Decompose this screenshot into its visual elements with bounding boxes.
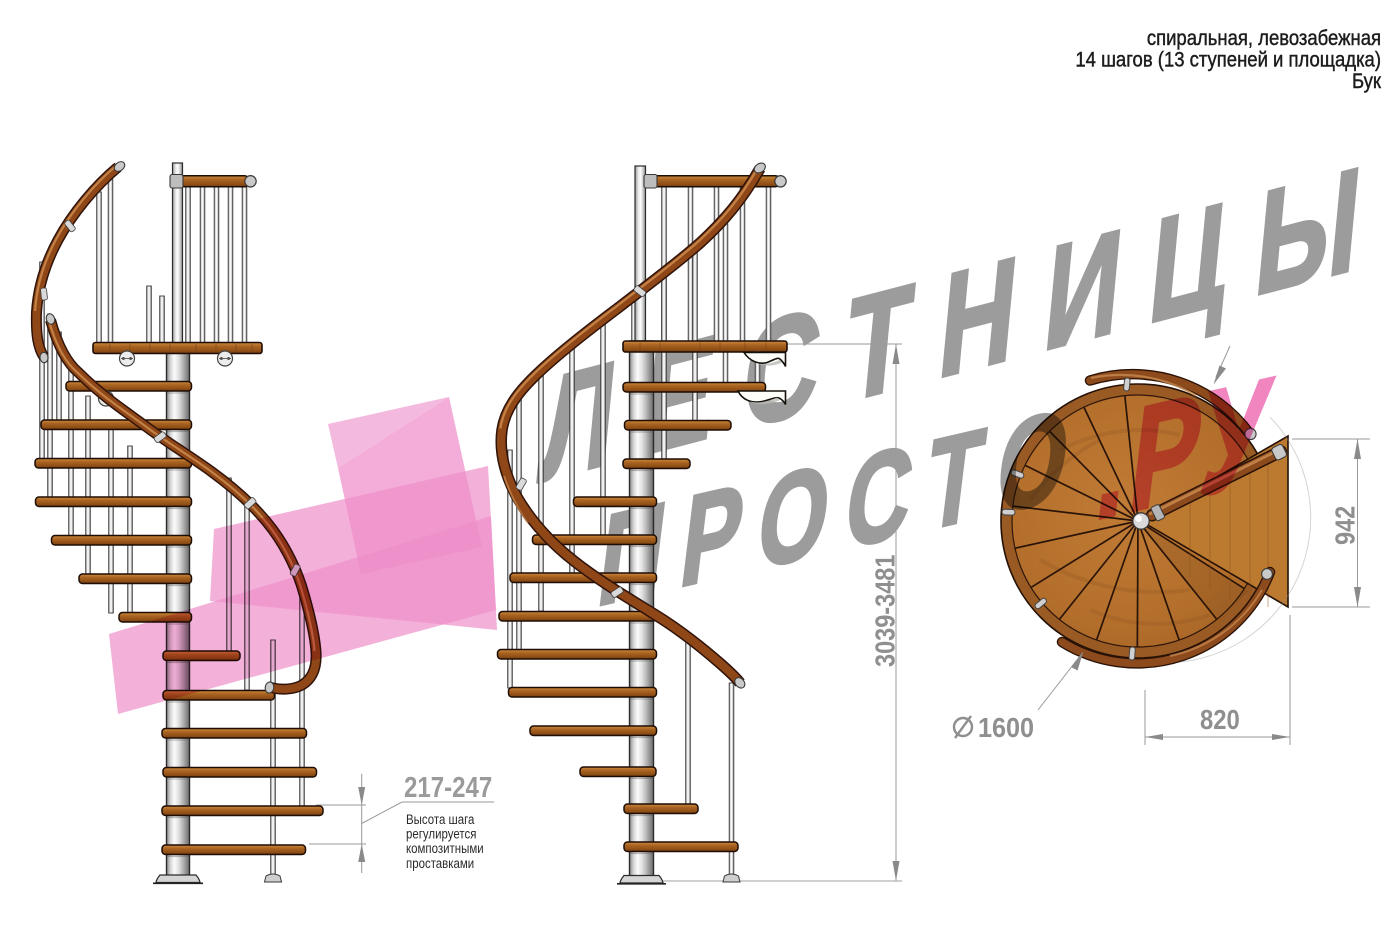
svg-text:Бук: Бук <box>1352 70 1381 94</box>
svg-text:регулируется: регулируется <box>406 827 476 842</box>
svg-text:14 шагов (13 ступеней и площад: 14 шагов (13 ступеней и площадка) <box>1075 48 1381 72</box>
svg-text:проставками: проставками <box>406 856 474 871</box>
svg-text:942: 942 <box>1331 506 1361 545</box>
svg-text:композитными: композитными <box>406 841 484 856</box>
svg-text:1600: 1600 <box>978 712 1034 744</box>
svg-text:спиральная, левозабежная: спиральная, левозабежная <box>1147 27 1381 51</box>
svg-text:820: 820 <box>1200 703 1240 735</box>
svg-text:Высота шага: Высота шага <box>406 812 474 827</box>
svg-text:3039-3481: 3039-3481 <box>871 555 901 667</box>
svg-text:217-247: 217-247 <box>404 771 492 804</box>
